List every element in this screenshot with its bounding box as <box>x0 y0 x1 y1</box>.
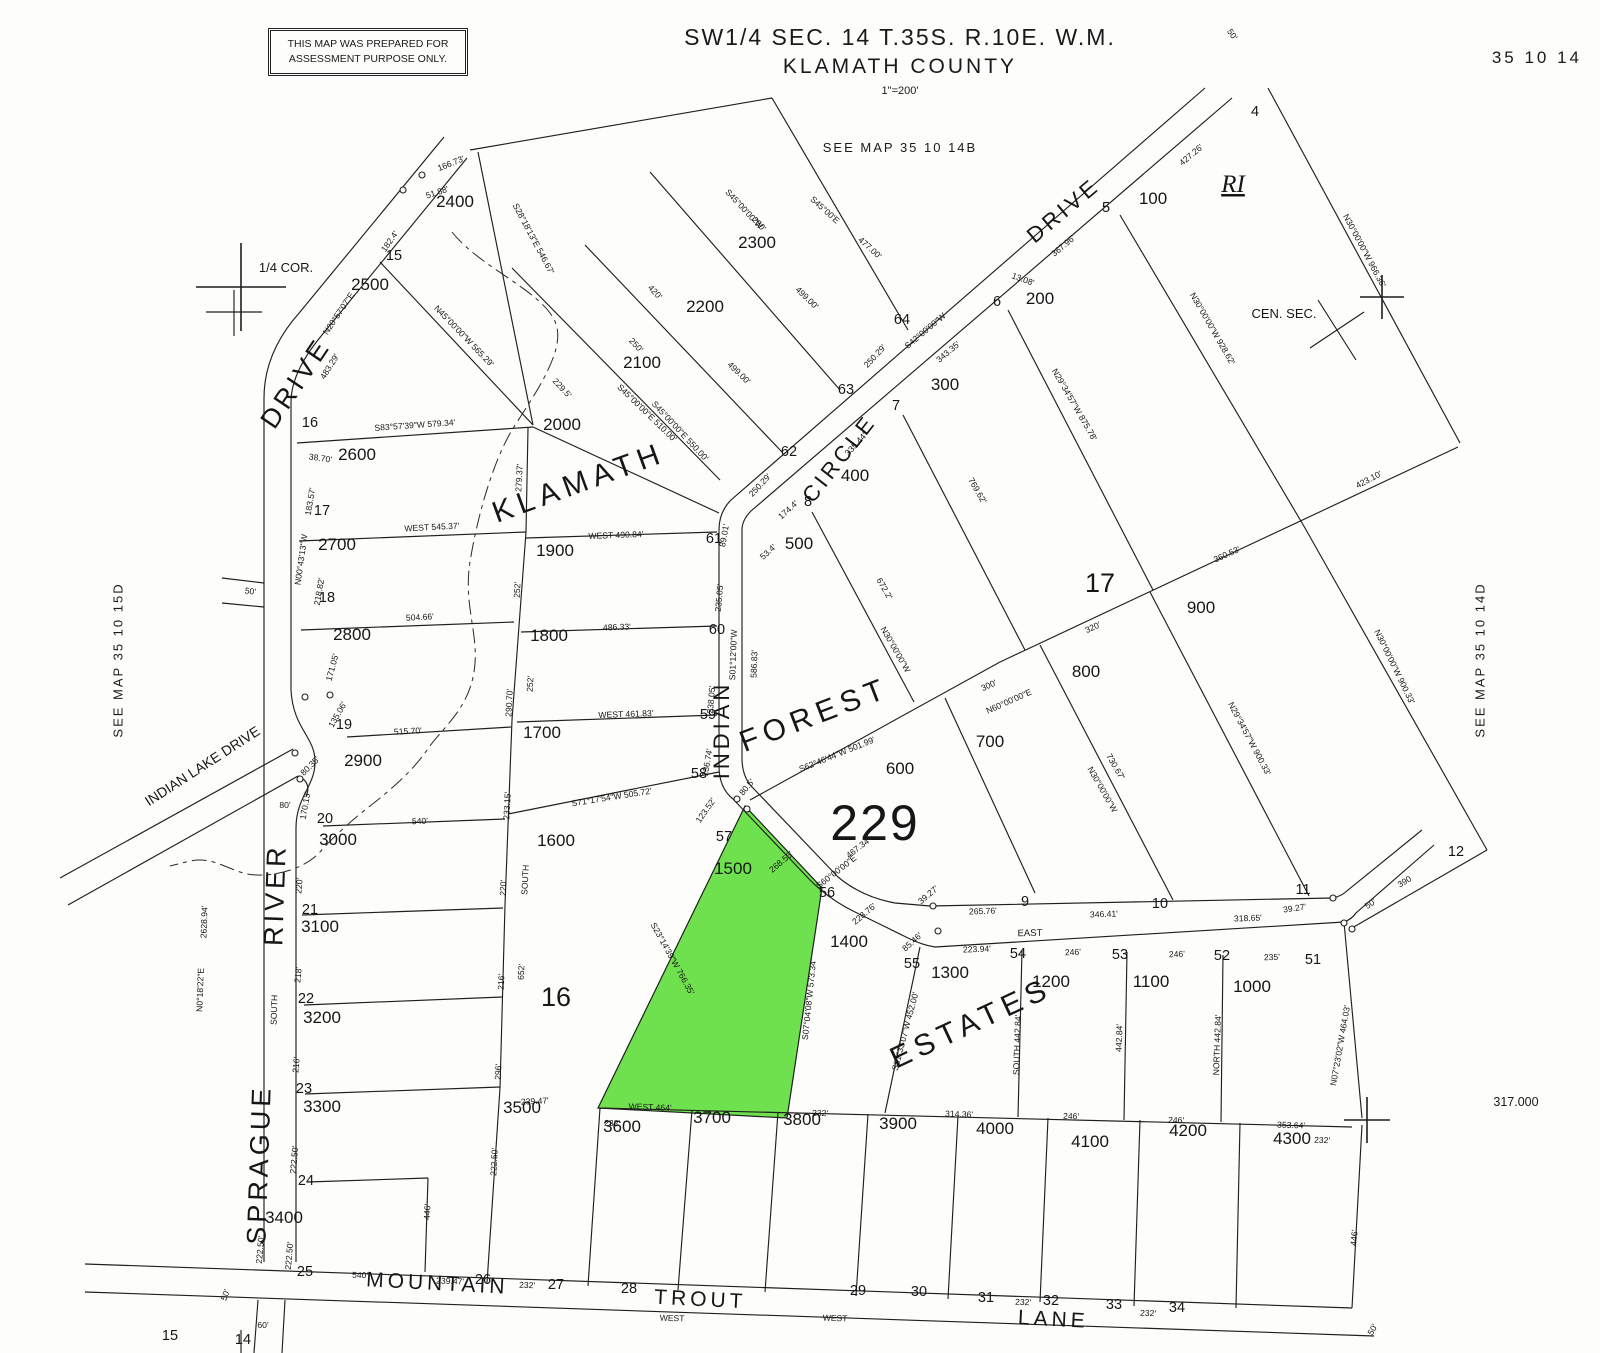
map-label-55: 55 <box>904 956 920 972</box>
map-label-14: 14 <box>235 1332 251 1348</box>
map-label-123-52-: 123.52' <box>693 796 717 825</box>
map-label-2600: 2600 <box>338 445 376 464</box>
line-point21 <box>302 908 503 915</box>
map-label-16: 16 <box>541 982 571 1012</box>
map-label-652-: 652' <box>516 963 527 980</box>
map-label-800: 800 <box>1072 662 1100 681</box>
lot2200-west-edge <box>585 245 782 452</box>
map-label-1400: 1400 <box>830 932 868 951</box>
map-label-50-: 50' <box>1225 27 1240 42</box>
map-label-1600: 1600 <box>537 831 575 850</box>
map-label-239-47-: 239.47' <box>521 1095 550 1106</box>
map-label-446-: 446' <box>1348 1229 1359 1246</box>
map-label-15: 15 <box>162 1328 178 1344</box>
map-label-28: 28 <box>621 1281 637 1297</box>
road-nodes <box>292 172 1355 934</box>
line-point53 <box>1124 952 1127 1120</box>
map-label-250-29-: 250.29' <box>862 342 889 370</box>
map-label-26: 26 <box>475 1272 491 1288</box>
street-sprague-river-drive: DRIVE <box>254 332 336 434</box>
map-label-343-35-: 343.35' <box>934 339 962 365</box>
map-label-1200: 1200 <box>1032 972 1070 991</box>
map-label-446-: 446' <box>422 1203 433 1220</box>
map-label-220-: 220' <box>498 879 509 896</box>
map-label-1000: 1000 <box>1233 977 1271 996</box>
map-label-427-26-: 427.26' <box>1177 142 1205 168</box>
node <box>297 776 303 782</box>
center-section-cross-2 <box>1310 300 1364 360</box>
map-label-499-00-: 499.00' <box>726 360 753 387</box>
map-label-80-5-: 80.5' <box>737 777 757 798</box>
map-label-n0-18-22-e: N0°18'22"E <box>194 967 206 1012</box>
map-label-4000: 4000 <box>976 1119 1014 1138</box>
map-label-4: 4 <box>1251 104 1259 120</box>
strip-200-300 <box>1008 310 1153 590</box>
map-label-3700: 3700 <box>693 1108 731 1127</box>
map-label-2000: 2000 <box>543 415 581 434</box>
map-label-346-41-: 346.41' <box>1090 909 1119 920</box>
map-label-252-: 252' <box>512 581 523 598</box>
map-label-north-442-84-: NORTH 442.84' <box>1211 1014 1223 1075</box>
map-label-600: 600 <box>886 759 914 778</box>
node <box>930 903 936 909</box>
map-label-246-: 246' <box>1169 949 1186 960</box>
map-label-west: WEST <box>823 1313 849 1324</box>
quarter-corner-cross <box>196 243 286 331</box>
map-label-3000: 3000 <box>319 830 357 849</box>
map-label-17: 17 <box>1085 568 1115 598</box>
quarter-corner-cross-2 <box>206 290 262 336</box>
map-label-30: 30 <box>911 1284 927 1300</box>
map-label-33: 33 <box>1106 1297 1122 1313</box>
map-label-drive: DRIVE <box>1022 173 1105 248</box>
lot3500-west-edge <box>487 1088 500 1283</box>
map-label-300-: 300' <box>979 677 998 693</box>
map-label-3200: 3200 <box>303 1008 341 1027</box>
map-label-51: 51 <box>1305 952 1321 968</box>
map-label-3900: 3900 <box>879 1114 917 1133</box>
map-label-s62-46-44-w-501-99-: S62°46'44"W 501.99' <box>797 734 876 774</box>
map-label-174-4-: 174.4' <box>776 498 800 521</box>
map-label-n60-00-00-e: N60°00'00"E <box>984 687 1033 716</box>
plat-map-canvas: 1/4 COR.CEN. SEC.DRIVERIVERSPRAGUEINDIAN… <box>0 0 1600 1353</box>
map-label-1700: 1700 <box>523 723 561 742</box>
map-label-1100: 1100 <box>1133 972 1170 991</box>
line-390 <box>1352 850 1487 928</box>
bottom-lot-dividers <box>588 1108 1240 1308</box>
node <box>1341 920 1347 926</box>
map-label-232-: 232' <box>519 1280 536 1291</box>
map-label-south: SOUTH <box>519 865 531 896</box>
map-label-s45-00-e: S45°00'E <box>808 194 841 225</box>
map-label-1900: 1900 <box>536 541 574 560</box>
ri-label: RI <box>1220 171 1246 198</box>
node <box>302 694 308 700</box>
map-label-6: 6 <box>993 294 1001 310</box>
map-label-lane: LANE <box>1017 1306 1089 1333</box>
node <box>327 692 333 698</box>
west-street-stub <box>222 578 264 607</box>
map-label-7: 7 <box>892 398 900 414</box>
map-label-222-50-: 222.50' <box>288 1145 300 1174</box>
map-label-8: 8 <box>804 494 812 510</box>
map-label-100: 100 <box>1139 189 1167 208</box>
map-label-23: 23 <box>296 1081 312 1097</box>
map-label-400: 400 <box>841 466 869 485</box>
lot4300-east-edge <box>1352 1125 1362 1308</box>
map-label-50-: 50' <box>244 585 257 597</box>
map-label-53: 53 <box>1112 947 1128 963</box>
line-point19 <box>347 727 511 737</box>
map-label-216-: 216' <box>290 1056 301 1073</box>
map-label-318-65-: 318.65' <box>1234 913 1263 924</box>
map-label-n00-43-13-w: N00°43'13"W <box>293 533 310 586</box>
map-label-2700: 2700 <box>318 535 356 554</box>
map-label-730-67-: 730.67' <box>1104 752 1127 781</box>
map-label-80-35-: 80.35' <box>298 754 322 778</box>
map-label-486-33-: 486.33' <box>603 622 632 633</box>
line-point23 <box>305 1087 500 1094</box>
map-label-16: 16 <box>302 415 318 431</box>
map-label-229-5-: 229.5' <box>551 376 574 400</box>
map-label-586-83-: 586.83' <box>749 649 760 678</box>
map-label-50-: 50' <box>1365 1322 1379 1337</box>
map-label-50-: 50' <box>1363 896 1378 911</box>
map-labels: 1/4 COR.CEN. SEC.DRIVERIVERSPRAGUEINDIAN… <box>142 27 1464 1348</box>
map-label-246-: 246' <box>1063 1111 1080 1122</box>
map-label-60: 60 <box>709 622 725 638</box>
map-label-31: 31 <box>978 1290 994 1306</box>
map-label-n45-00-00-w-565-29-: N45°00'00"W 565.29' <box>432 303 496 369</box>
map-label-265-76-: 265.76' <box>969 906 998 917</box>
map-label-10: 10 <box>1152 896 1168 912</box>
map-label-west-490-84-: WEST 490.84' <box>588 529 644 541</box>
map-label-290-70-: 290.70' <box>503 688 514 717</box>
map-label-246-: 246' <box>1065 947 1082 958</box>
map-label-2300: 2300 <box>738 233 776 252</box>
map-label-300: 300 <box>931 375 959 394</box>
map-label-1300: 1300 <box>931 963 969 982</box>
map-label-250-: 250' <box>627 336 645 355</box>
map-label-32: 32 <box>1043 1293 1059 1309</box>
node <box>935 928 941 934</box>
map-label-85-46-: 85.46' <box>900 930 924 953</box>
map-label-367-96-: 367.96' <box>1049 233 1077 259</box>
map-label-west-461-83-: WEST 461.83' <box>598 708 654 720</box>
strip-700-800 <box>1040 645 1173 900</box>
map-label-south-442-84-: SOUTH 442.84' <box>1011 1014 1023 1075</box>
map-label-540-: 540' <box>352 1270 369 1281</box>
node <box>292 750 298 756</box>
map-label-233-15-: 233.15' <box>501 791 512 820</box>
map-label-232-: 232' <box>1015 1297 1032 1308</box>
map-label-314-36-: 314.36' <box>945 1109 974 1120</box>
map-label-252-: 252' <box>525 675 536 692</box>
center-section-label: CEN. SEC. <box>1251 306 1316 321</box>
survey-marks <box>196 243 1404 1353</box>
map-label-2800: 2800 <box>333 625 371 644</box>
node <box>1330 895 1336 901</box>
map-label-n29-34-57-w-900-33-: N29°34'57"W 900.33' <box>1226 700 1273 777</box>
southeast-corner-cross <box>1344 1097 1390 1143</box>
map-label-166-73-: 166.73' <box>436 153 466 173</box>
map-label-499-00-: 499.00' <box>794 285 821 312</box>
map-label-232-: 232' <box>1314 1135 1331 1146</box>
map-label-25: 25 <box>297 1264 313 1280</box>
map-label-246-: 246' <box>1168 1115 1185 1126</box>
map-label-west-464-: WEST 464' <box>628 1101 672 1113</box>
map-label-s45-00-00-w: S45°00'00"W <box>723 187 765 232</box>
map-label-353-64-: 353.64' <box>1277 1120 1306 1131</box>
map-label-circle: CIRCLE <box>797 409 881 507</box>
map-label-700: 700 <box>976 732 1004 751</box>
map-label-232-: 232' <box>1140 1308 1157 1319</box>
node <box>744 806 750 812</box>
map-label-24: 24 <box>298 1173 314 1189</box>
map-label-53-4-: 53.4' <box>758 542 779 562</box>
map-label-63: 63 <box>838 382 854 398</box>
node <box>400 187 406 193</box>
map-label-s28-18-13-e-546-67-: S28°18'13"E 546.67' <box>511 202 557 276</box>
map-label-east: EAST <box>1017 928 1042 939</box>
map-label-64: 64 <box>894 312 910 328</box>
strip-300-400 <box>903 415 1025 650</box>
map-label-220-: 220' <box>293 877 304 894</box>
map-label-9: 9 <box>1021 894 1029 910</box>
map-label-222-50-: 222.50' <box>488 1147 499 1176</box>
map-label-360-53-: 360.53' <box>1212 544 1242 565</box>
map-label-4300: 4300 <box>1273 1129 1311 1148</box>
map-label-235-05-: 235.05' <box>713 583 725 612</box>
map-label-2628-94-: 2628.94' <box>198 905 209 938</box>
map-label-170-13-: 170.13' <box>298 791 313 821</box>
map-label-n30-00-00-w-900-33-: N30°00'00"W 900.33' <box>1372 628 1417 706</box>
map-label-223-94-: 223.94' <box>963 944 992 955</box>
map-label-54: 54 <box>1010 946 1026 962</box>
map-label-trout: TROUT <box>654 1286 747 1314</box>
circle-drive-upper-east-edge <box>742 98 1232 530</box>
plat-map-page: THIS MAP WAS PREPARED FOR ASSESSMENT PUR… <box>0 0 1600 1353</box>
map-label-218-: 218' <box>292 966 303 983</box>
map-label-2900: 2900 <box>344 751 382 770</box>
map-label-s83-57-39-w-579-34-: S83°57'39"W 579.34' <box>374 417 456 433</box>
block-229-label: 229 <box>830 795 919 851</box>
map-label-5: 5 <box>1102 200 1110 216</box>
quarter-corner-label: 1/4 COR. <box>259 260 313 275</box>
map-label-39-27-: 39.27' <box>916 883 940 906</box>
map-label-57: 57 <box>716 829 732 845</box>
highlighted-lot-number: 1500 <box>714 859 752 878</box>
map-label-504-66-: 504.66' <box>406 611 435 622</box>
map-label-21: 21 <box>302 902 318 918</box>
map-label-20: 20 <box>317 811 333 827</box>
map-label-n30-00-00-w-966-36-: N30°00'00"W 966.36' <box>1341 212 1388 289</box>
node <box>734 796 740 802</box>
map-label-228-76-: 228.76' <box>850 901 878 927</box>
lot2500-southeast-edge <box>380 262 533 425</box>
map-label-29: 29 <box>850 1283 866 1299</box>
map-label-3100: 3100 <box>301 917 339 936</box>
strip-400-500 <box>812 512 914 702</box>
map-label-38-70-: 38.70' <box>308 451 333 464</box>
map-label-39-27-: 39.27' <box>1282 901 1307 914</box>
map-label-769-62-: 769.62' <box>966 476 989 505</box>
map-label-s01-12-00-w: S01°12'00"W <box>727 629 739 681</box>
map-label-80-: 80' <box>279 800 291 810</box>
map-label-216-: 216' <box>496 973 507 990</box>
creek-line <box>170 232 558 875</box>
strip-600-700 <box>945 698 1035 893</box>
map-label-12: 12 <box>1448 844 1464 860</box>
map-label-222-50-: 222.50' <box>283 1241 295 1270</box>
node <box>1349 926 1355 932</box>
map-label-60-: 60' <box>257 1320 269 1330</box>
sprague-drive-west-edge <box>264 137 444 1262</box>
map-label-1800: 1800 <box>530 626 568 645</box>
map-label-52: 52 <box>1214 948 1230 964</box>
map-label-3400: 3400 <box>265 1208 303 1227</box>
map-label-27: 27 <box>548 1277 564 1293</box>
north-boundary <box>470 98 772 150</box>
map-label-2100: 2100 <box>623 353 661 372</box>
map-label-n20-57-07-e: N20°57'07"E <box>321 290 357 336</box>
map-label-62: 62 <box>781 444 797 460</box>
map-label-239-47-: 239.47' <box>436 1276 465 1287</box>
map-label-n30-00-00-w-928-62-: N30°00'00"W 928.62' <box>1188 291 1238 367</box>
map-label-500: 500 <box>785 534 813 553</box>
map-label-232-: 232' <box>812 1108 829 1119</box>
map-label-17: 17 <box>314 503 330 519</box>
street-indian-lake-drive: INDIAN LAKE DRIVE <box>142 723 263 809</box>
map-label-442-84-: 442.84' <box>1114 1023 1125 1052</box>
line-point24 <box>307 1178 428 1182</box>
map-label-west: WEST <box>660 1313 686 1324</box>
lot2300-northeast-edge <box>772 98 908 330</box>
map-label-235-: 235' <box>1264 952 1281 963</box>
lot2400-east-edge <box>478 152 533 425</box>
lot3400-east-edge <box>425 1178 428 1272</box>
map-label-22: 22 <box>298 991 314 1007</box>
map-label-296-: 296' <box>493 1063 504 1080</box>
northeast-plat-boundary <box>1268 88 1460 443</box>
map-label-540-: 540' <box>412 816 429 827</box>
map-label-south: SOUTH <box>268 995 279 1025</box>
map-label-515-70-: 515.70' <box>394 725 423 736</box>
map-label-n07-23-02-w-464-03-: N07°23'02"W 464.03' <box>1328 1004 1352 1086</box>
map-label-423-10-: 423.10' <box>1354 468 1384 490</box>
map-label-11: 11 <box>1295 882 1310 898</box>
map-label-50-: 50' <box>219 1288 232 1302</box>
map-label-900: 900 <box>1187 598 1215 617</box>
map-label-west-545-37-: WEST 545.37' <box>404 521 460 534</box>
map-label-171-05-: 171.05' <box>324 652 341 682</box>
map-label-4100: 4100 <box>1071 1132 1109 1151</box>
line-point22 <box>304 997 502 1005</box>
node <box>419 172 425 178</box>
map-label-420-: 420' <box>646 283 664 302</box>
map-label-2200: 2200 <box>686 297 724 316</box>
strip-800-900 <box>1150 592 1309 896</box>
map-label-200: 200 <box>1026 289 1054 308</box>
map-label-2500: 2500 <box>351 275 389 294</box>
circle-drive-upper-west-edge <box>719 88 1205 530</box>
map-label-3300: 3300 <box>303 1097 341 1116</box>
map-label-s71-17-54-w-505-72-: S71°17'54"W 505.72' <box>571 786 653 809</box>
map-label-232-: 232' <box>604 1118 621 1129</box>
map-label-river: RIVER <box>258 843 292 947</box>
map-label-672-2-: 672.2' <box>874 576 894 601</box>
map-label-34: 34 <box>1169 1300 1185 1316</box>
map-label-279-37-: 279.37' <box>513 463 524 492</box>
